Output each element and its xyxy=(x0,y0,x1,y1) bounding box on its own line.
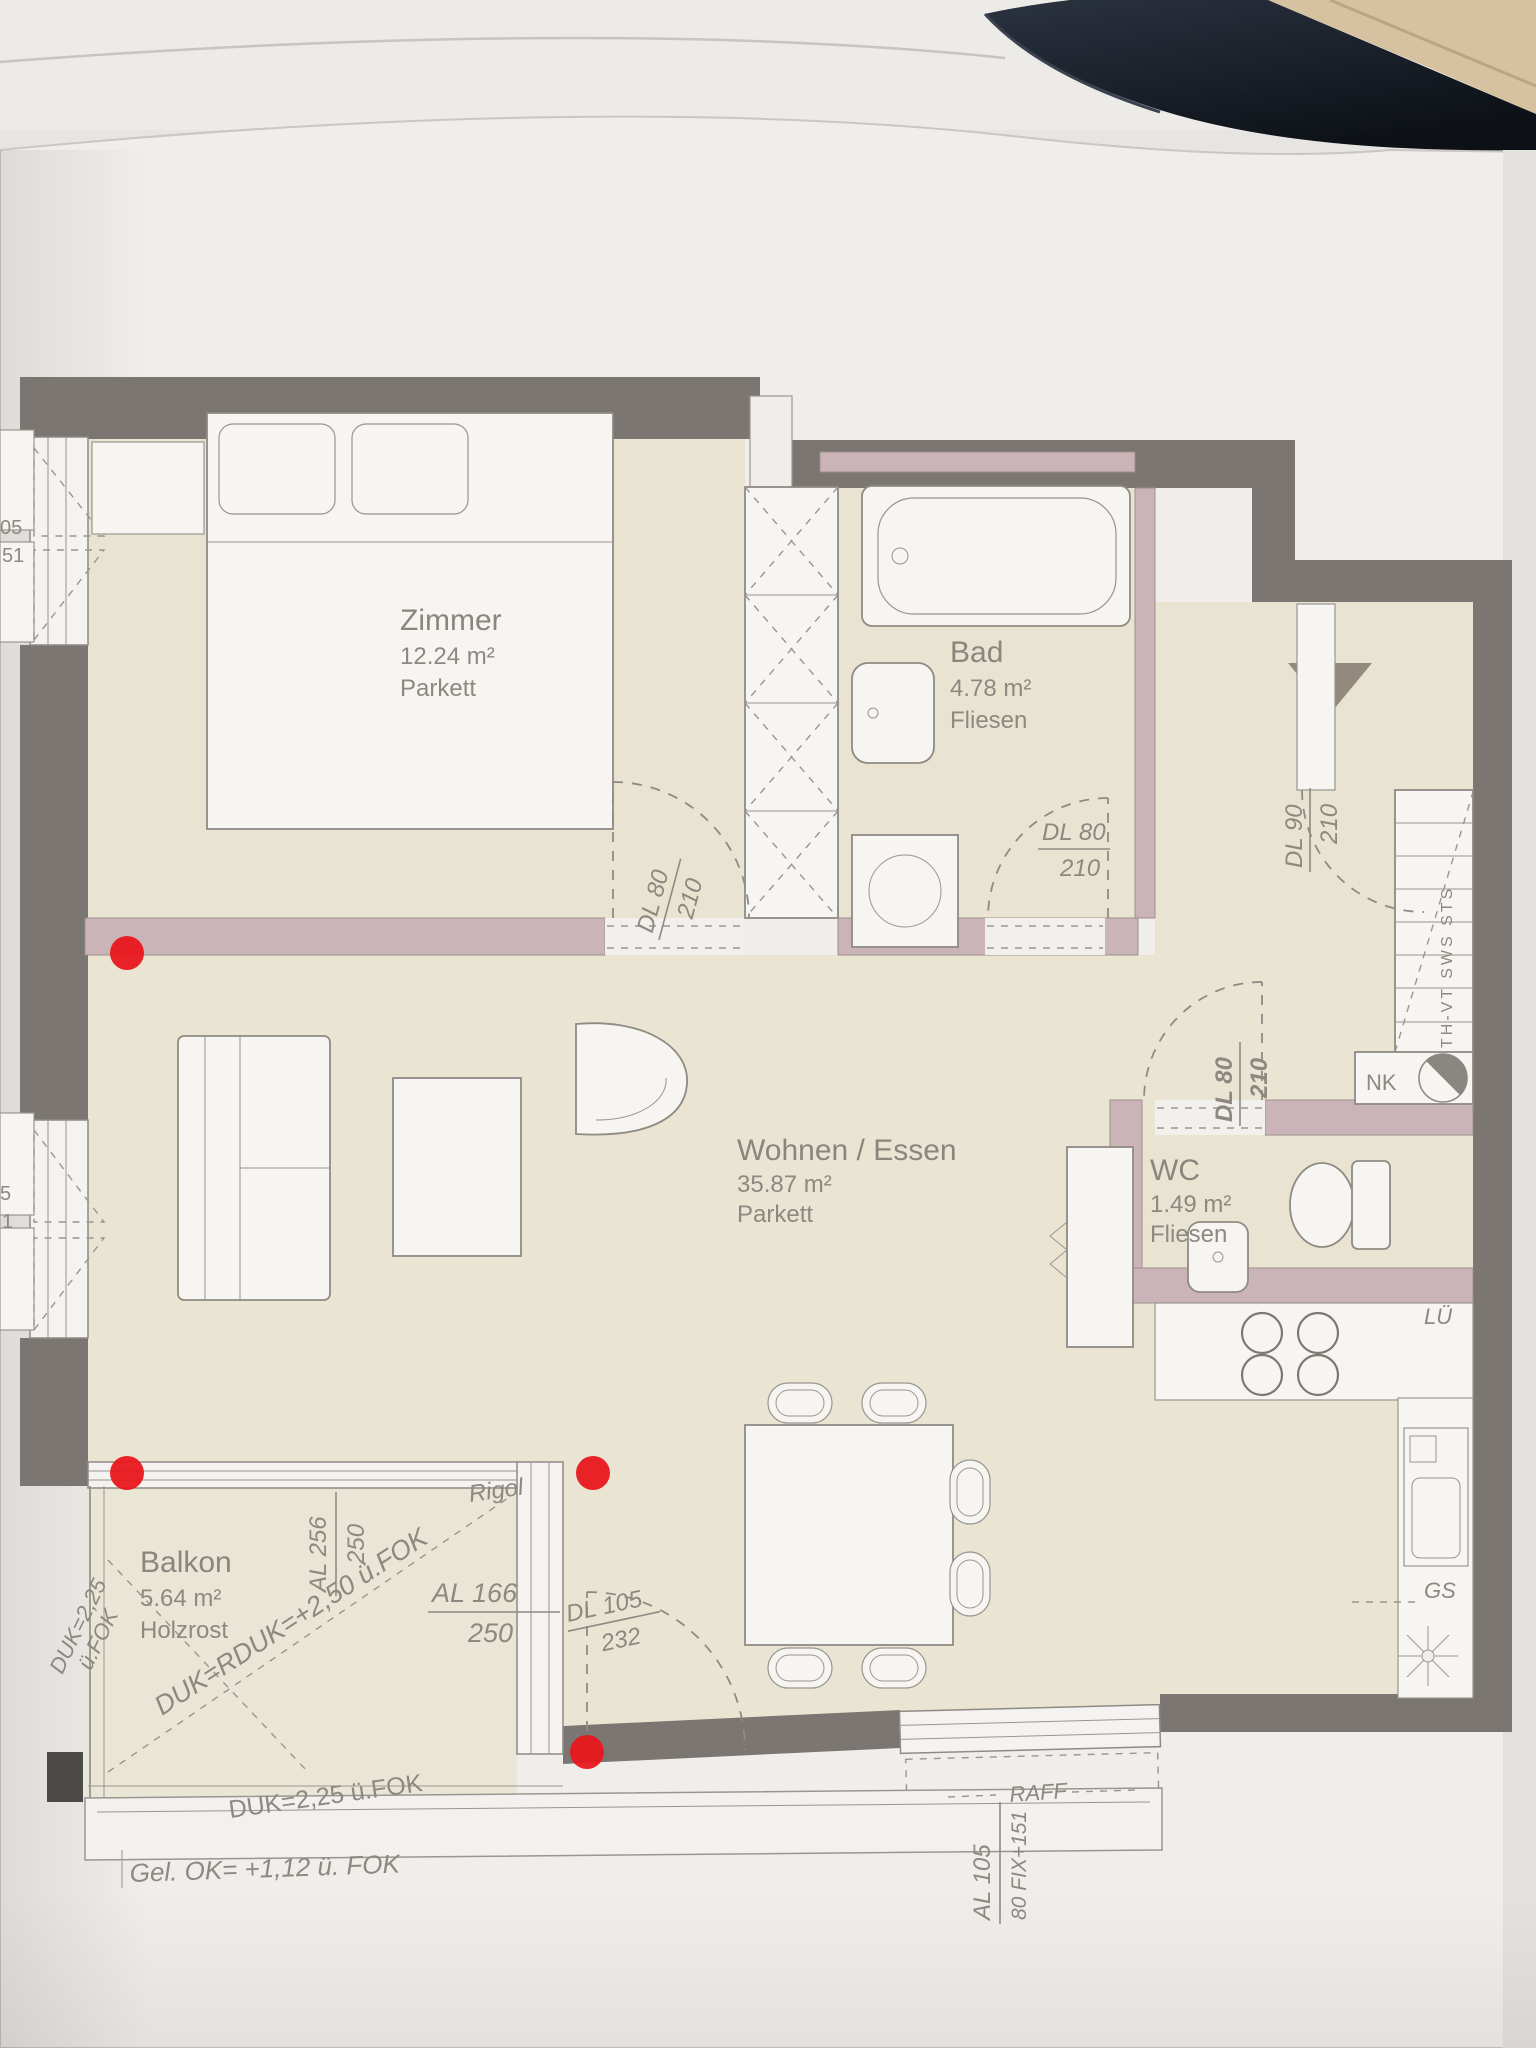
wall-west-mid xyxy=(20,645,88,1120)
svg-text:210: 210 xyxy=(1246,1057,1273,1099)
svg-text:Holzrost: Holzrost xyxy=(140,1617,228,1644)
wall-east xyxy=(1473,560,1512,1732)
svg-text:AL 105: AL 105 xyxy=(969,1844,996,1922)
svg-text:Fliesen: Fliesen xyxy=(950,707,1027,734)
toilet-bowl xyxy=(1290,1163,1354,1247)
sofa xyxy=(178,1036,330,1300)
svg-text:210: 210 xyxy=(1059,855,1101,882)
balcony-post xyxy=(47,1752,83,1802)
svg-text:AL 166: AL 166 xyxy=(430,1578,518,1608)
svg-text:Bad: Bad xyxy=(950,636,1003,669)
wall-south-east xyxy=(1160,1694,1476,1732)
svg-text:Parkett: Parkett xyxy=(737,1201,813,1228)
bad-door-gap xyxy=(985,918,1105,955)
wall-zimmer-south xyxy=(85,918,605,955)
svg-text:80 FIX+151: 80 FIX+151 xyxy=(1008,1811,1031,1920)
shaft-cabinet xyxy=(1395,790,1473,1055)
washing-machine xyxy=(852,835,958,947)
svg-text:1: 1 xyxy=(2,1211,13,1233)
svg-text:210: 210 xyxy=(1316,803,1343,845)
svg-text:1.49 m²: 1.49 m² xyxy=(1150,1191,1231,1218)
svg-text:12.24 m²: 12.24 m² xyxy=(400,643,495,670)
wall-wc-south xyxy=(1110,1268,1473,1303)
closet xyxy=(745,487,838,918)
pillow xyxy=(352,424,468,514)
window-al166-band xyxy=(517,1462,563,1754)
svg-text:WC: WC xyxy=(1150,1154,1200,1187)
marker-dot[interactable] xyxy=(570,1735,604,1769)
svg-text:4.78 m²: 4.78 m² xyxy=(950,675,1031,702)
window-al256 xyxy=(88,1462,518,1488)
gs-label: GS xyxy=(1424,1578,1456,1603)
bathtub-inner xyxy=(878,498,1116,614)
svg-text:Parkett: Parkett xyxy=(400,675,476,702)
balkon-label: Balkon 5.64 m² Holzrost xyxy=(140,1546,232,1644)
wall-joint xyxy=(750,396,792,492)
dishwasher-star-icon xyxy=(1398,1626,1458,1686)
entrance-door-frame xyxy=(1297,604,1335,790)
svg-text:51: 51 xyxy=(2,545,24,567)
marker-dot[interactable] xyxy=(110,936,144,970)
pillow xyxy=(219,424,335,514)
dining-set xyxy=(745,1383,990,1688)
svg-text:5.64 m²: 5.64 m² xyxy=(140,1585,221,1612)
svg-text:5: 5 xyxy=(0,1183,11,1205)
wall-northeast xyxy=(1252,440,1295,602)
dresser xyxy=(92,442,204,534)
marker-dot[interactable] xyxy=(110,1456,144,1490)
bad-sink xyxy=(852,663,934,763)
wall-wc-north xyxy=(1265,1100,1473,1135)
window-leaf xyxy=(0,430,34,530)
svg-text:05: 05 xyxy=(0,517,22,539)
lue-label: LÜ xyxy=(1424,1304,1452,1329)
svg-text:35.87 m²: 35.87 m² xyxy=(737,1171,832,1198)
bottom-shadow xyxy=(0,1890,1536,2048)
toilet-tank xyxy=(1352,1161,1390,1249)
svg-text:Zimmer: Zimmer xyxy=(400,604,502,637)
window-west-zimmer xyxy=(30,437,88,645)
svg-text:Wohnen / Essen: Wohnen / Essen xyxy=(737,1134,957,1167)
svg-text:250: 250 xyxy=(467,1618,513,1648)
svg-text:Fliesen: Fliesen xyxy=(1150,1221,1227,1248)
raff-label: RAFF xyxy=(1009,1778,1070,1807)
wall-bad-north-lining xyxy=(820,452,1135,472)
photo-of-floorplan: Zimmer 12.24 m² Parkett Bad 4.78 m² Flie… xyxy=(0,0,1536,2048)
shaft-label: TH-VT SWS STS xyxy=(1439,886,1456,1048)
zimmer-door-gap xyxy=(605,918,745,955)
floorplan-scene: Zimmer 12.24 m² Parkett Bad 4.78 m² Flie… xyxy=(0,0,1536,2048)
window-leaf xyxy=(0,1228,34,1330)
nk-label: NK xyxy=(1366,1070,1397,1095)
kitchen-island xyxy=(1067,1147,1133,1347)
coffee-table xyxy=(393,1078,521,1256)
svg-text:DL 90: DL 90 xyxy=(1281,804,1308,868)
svg-text:Balkon: Balkon xyxy=(140,1546,232,1579)
marker-dot[interactable] xyxy=(576,1456,610,1490)
wc-door-gap xyxy=(1155,1100,1265,1135)
wall-west-low xyxy=(20,1338,88,1486)
svg-text:DL 80: DL 80 xyxy=(1042,819,1106,846)
window-west-living xyxy=(30,1120,88,1338)
wall-entrance-top xyxy=(1295,560,1473,602)
dining-table xyxy=(745,1425,953,1645)
wall-bad-east xyxy=(1135,488,1155,918)
svg-text:DL 80: DL 80 xyxy=(1211,1056,1238,1122)
